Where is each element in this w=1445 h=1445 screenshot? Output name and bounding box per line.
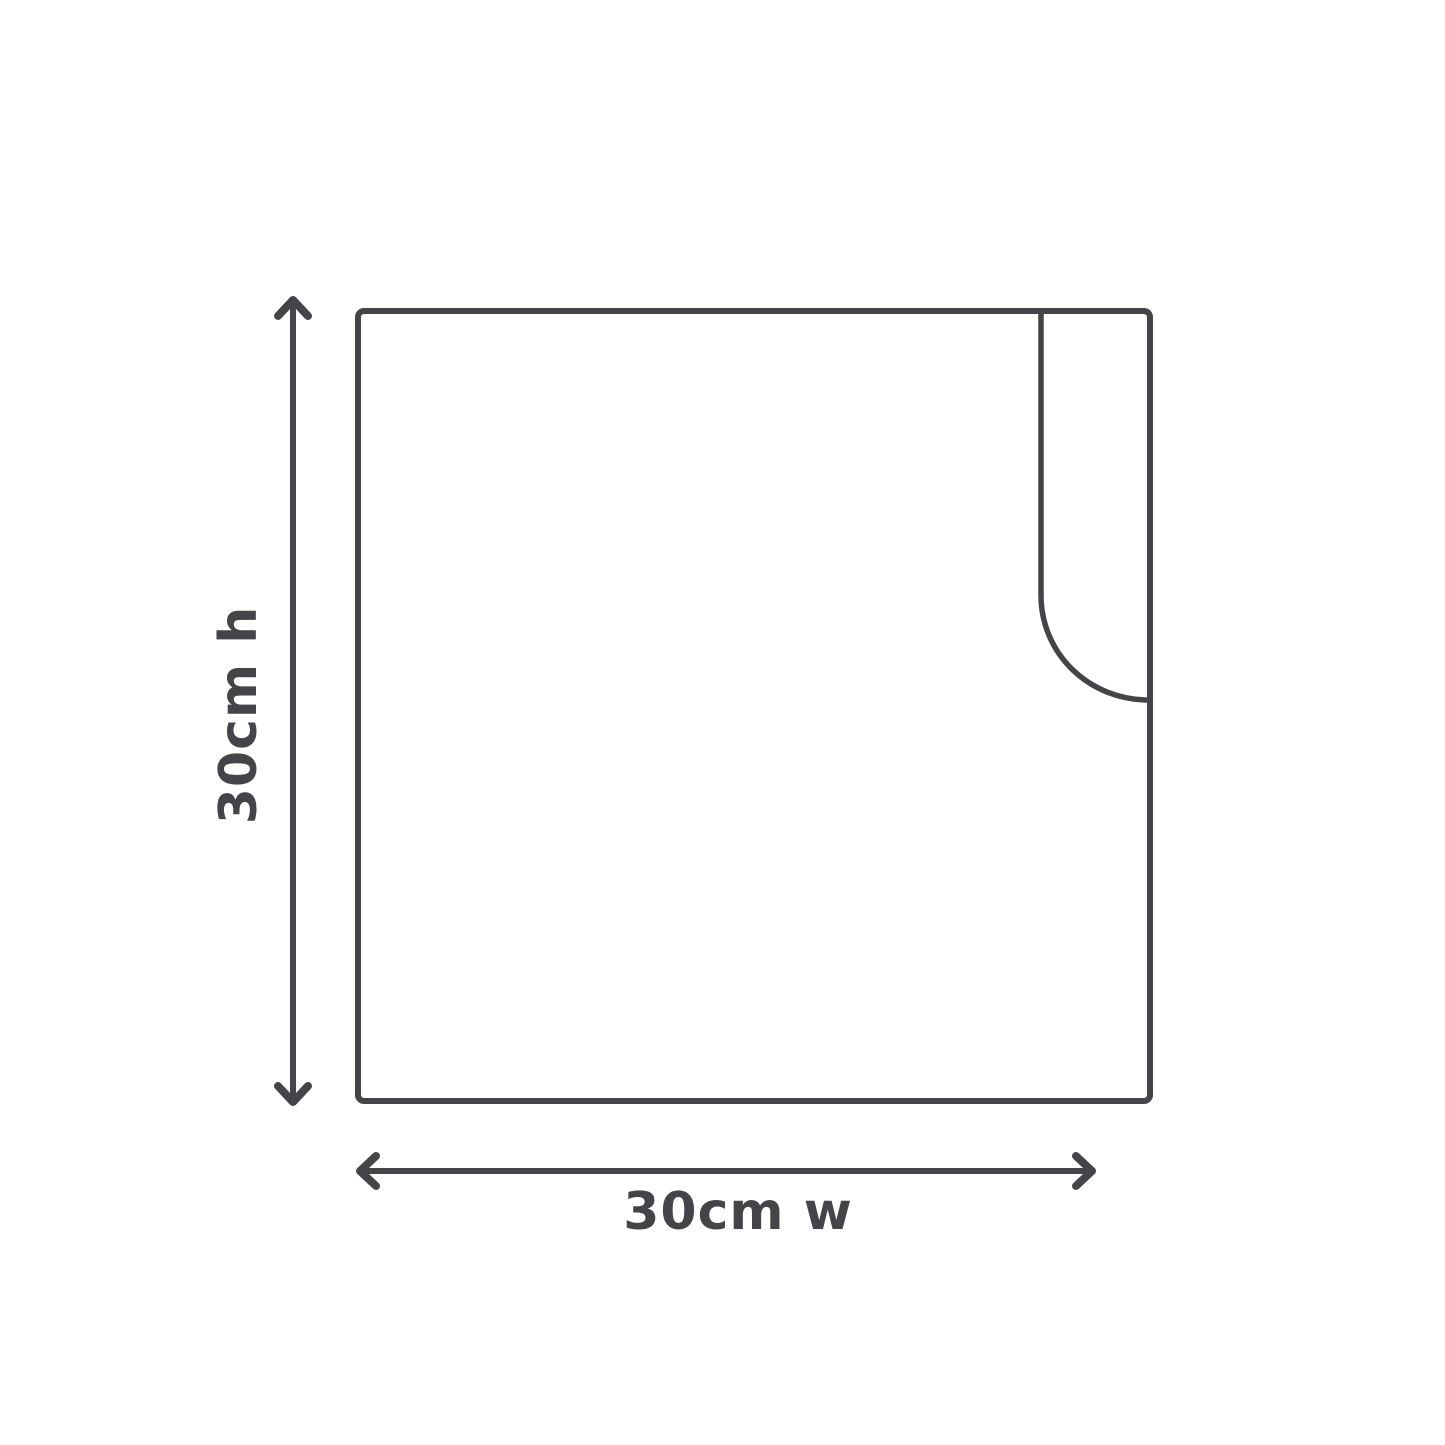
diagram-canvas: 30cm h 30cm w <box>0 0 1445 1445</box>
height-label: 30cm h <box>209 606 269 825</box>
height-dimension-arrow <box>278 300 308 1102</box>
square-outline <box>358 311 1150 1101</box>
width-label: 30cm w <box>623 1182 853 1242</box>
corner-flap-curve <box>1041 312 1149 700</box>
dimension-diagram: 30cm h 30cm w <box>0 0 1445 1445</box>
